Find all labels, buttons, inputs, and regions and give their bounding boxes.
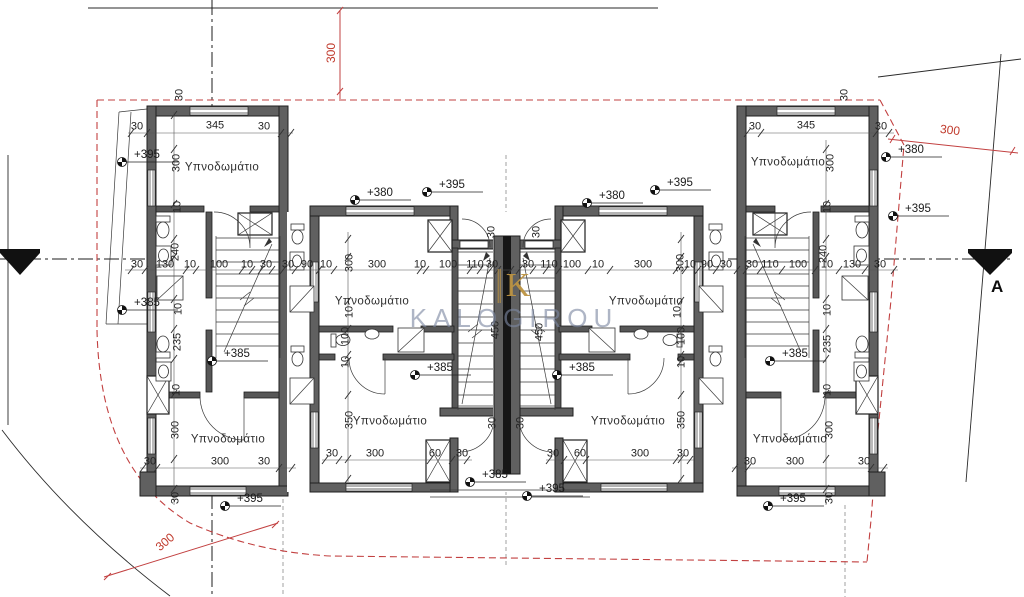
dim-label: 100 bbox=[341, 327, 352, 345]
dim-label: 30 bbox=[749, 122, 761, 133]
level-label: +385 bbox=[782, 349, 808, 361]
dim-label: 30 bbox=[258, 122, 270, 133]
room-label-bedroom: Υπνοδωμάτιο bbox=[191, 434, 265, 446]
dim-label: 90 bbox=[701, 260, 713, 271]
level-label: +385 bbox=[482, 470, 508, 482]
level-label: +395 bbox=[439, 180, 465, 192]
dim-label: 30 bbox=[487, 226, 498, 238]
dim-label: 240 bbox=[171, 243, 182, 261]
dim-label: 300 bbox=[631, 449, 649, 460]
dim-label: 345 bbox=[797, 121, 815, 132]
dim-label: 30 bbox=[144, 457, 156, 468]
red-dim-label: 300 bbox=[939, 123, 960, 137]
section-marker-right bbox=[968, 249, 1012, 275]
dim-label: 10 bbox=[823, 304, 834, 316]
dim-label: 100 bbox=[563, 260, 581, 271]
section-label: A bbox=[991, 278, 1003, 295]
dim-label: 130 bbox=[843, 260, 861, 271]
dim-label: 345 bbox=[206, 121, 224, 132]
dim-label: 90 bbox=[301, 260, 313, 271]
dim-label: 10 bbox=[174, 303, 185, 315]
dim-label: 235 bbox=[823, 335, 834, 353]
dim-label: 30 bbox=[677, 449, 689, 460]
level-label: +380 bbox=[367, 188, 393, 200]
dim-label: 30 bbox=[547, 449, 559, 460]
level-label: +395 bbox=[905, 204, 931, 216]
level-label: +385 bbox=[427, 363, 453, 375]
dim-label: 30 bbox=[488, 417, 499, 429]
room-label-bedroom: Υπνοδωμάτιο bbox=[753, 434, 827, 446]
dim-label: 100 bbox=[210, 260, 228, 271]
dim-label: 300 bbox=[171, 421, 182, 439]
dim-label: 30 bbox=[858, 457, 870, 468]
dim-label: 240 bbox=[819, 245, 830, 263]
dim-label: 350 bbox=[677, 411, 688, 429]
level-label: +380 bbox=[599, 191, 625, 203]
dim-label: 30 bbox=[171, 492, 182, 504]
dim-label: 30 bbox=[744, 457, 756, 468]
dim-label: 10 bbox=[172, 384, 183, 396]
room-label-bedroom: Υπνοδωμάτιο bbox=[609, 296, 683, 308]
dim-label: 60 bbox=[574, 449, 586, 460]
dim-label: 10 bbox=[184, 260, 196, 271]
dim-label: 110 bbox=[540, 260, 558, 271]
level-label: +395 bbox=[237, 494, 263, 506]
room-label-bedroom: Υπνοδωμάτιο bbox=[751, 157, 825, 169]
level-label: +395 bbox=[667, 178, 693, 190]
dim-label: 30 bbox=[456, 449, 468, 460]
dim-label: 300 bbox=[368, 260, 386, 271]
dim-label: 300 bbox=[676, 254, 687, 272]
unit-middle-left bbox=[287, 206, 520, 492]
dim-label: 30 bbox=[516, 417, 527, 429]
dim-label: 10 bbox=[320, 260, 332, 271]
dim-label: 10 bbox=[173, 201, 184, 213]
dim-label: 30 bbox=[282, 260, 294, 271]
room-label-bedroom: Υπνοδωμάτιο bbox=[335, 296, 409, 308]
dim-label: 60 bbox=[429, 449, 441, 460]
dim-label: 10 bbox=[241, 260, 253, 271]
dim-label: 10 bbox=[823, 201, 834, 213]
dim-label: 300 bbox=[345, 254, 356, 272]
level-label: +385 bbox=[569, 363, 595, 375]
level-label: +385 bbox=[224, 349, 250, 361]
dim-label: 30 bbox=[874, 260, 886, 271]
section-marker-left bbox=[0, 249, 40, 275]
red-dim-label: 300 bbox=[325, 43, 337, 63]
watermark-brand: KALOGIROU bbox=[410, 305, 619, 331]
dim-label: 30 bbox=[260, 260, 272, 271]
dim-label: 300 bbox=[786, 457, 804, 468]
dim-label: 30 bbox=[840, 89, 851, 101]
level-label: +395 bbox=[134, 150, 160, 162]
dim-label: 30 bbox=[131, 122, 143, 133]
room-label-bedroom: Υπνοδωμάτιο bbox=[353, 416, 427, 428]
dim-label: 100 bbox=[789, 260, 807, 271]
dim-label: 30 bbox=[326, 449, 338, 460]
dim-label: 30 bbox=[720, 260, 732, 271]
dim-label: 30 bbox=[746, 260, 758, 271]
level-label: +395 bbox=[539, 484, 565, 496]
dim-label: 300 bbox=[172, 154, 183, 172]
dim-label: 10 bbox=[592, 260, 604, 271]
dim-label: 30 bbox=[175, 89, 186, 101]
dim-label: 110 bbox=[761, 260, 779, 271]
dim-label: 30 bbox=[875, 122, 887, 133]
room-label-bedroom: Υπνοδωμάτιο bbox=[185, 162, 259, 174]
dim-label: 30 bbox=[258, 457, 270, 468]
dim-label: 100 bbox=[439, 260, 457, 271]
dim-label: 10 bbox=[414, 260, 426, 271]
unit-middle-right bbox=[493, 206, 726, 492]
dim-label: 30 bbox=[825, 492, 836, 504]
dim-label: 30 bbox=[486, 260, 498, 271]
dim-label: 100 bbox=[677, 327, 688, 345]
dim-label: 30 bbox=[131, 260, 143, 271]
dim-label: 10 bbox=[341, 356, 352, 368]
dim-label: 300 bbox=[826, 154, 837, 172]
dim-label: 10 bbox=[823, 384, 834, 396]
dim-label: 235 bbox=[173, 333, 184, 351]
dim-label: 110 bbox=[466, 260, 484, 271]
dim-label: 10 bbox=[677, 356, 688, 368]
dim-label: 300 bbox=[211, 457, 229, 468]
dim-label: 300 bbox=[634, 260, 652, 271]
level-label: +385 bbox=[134, 298, 160, 310]
dim-label: 300 bbox=[366, 449, 384, 460]
watermark-logo: K bbox=[498, 269, 531, 303]
level-label: +380 bbox=[898, 145, 924, 157]
level-label: +395 bbox=[780, 494, 806, 506]
floorplan-page: 30 130 10 100 10 30 30 90 10 300 10 100 … bbox=[0, 0, 1024, 597]
room-label-bedroom: Υπνοδωμάτιο bbox=[591, 416, 665, 428]
dim-label: 30 bbox=[532, 226, 543, 238]
